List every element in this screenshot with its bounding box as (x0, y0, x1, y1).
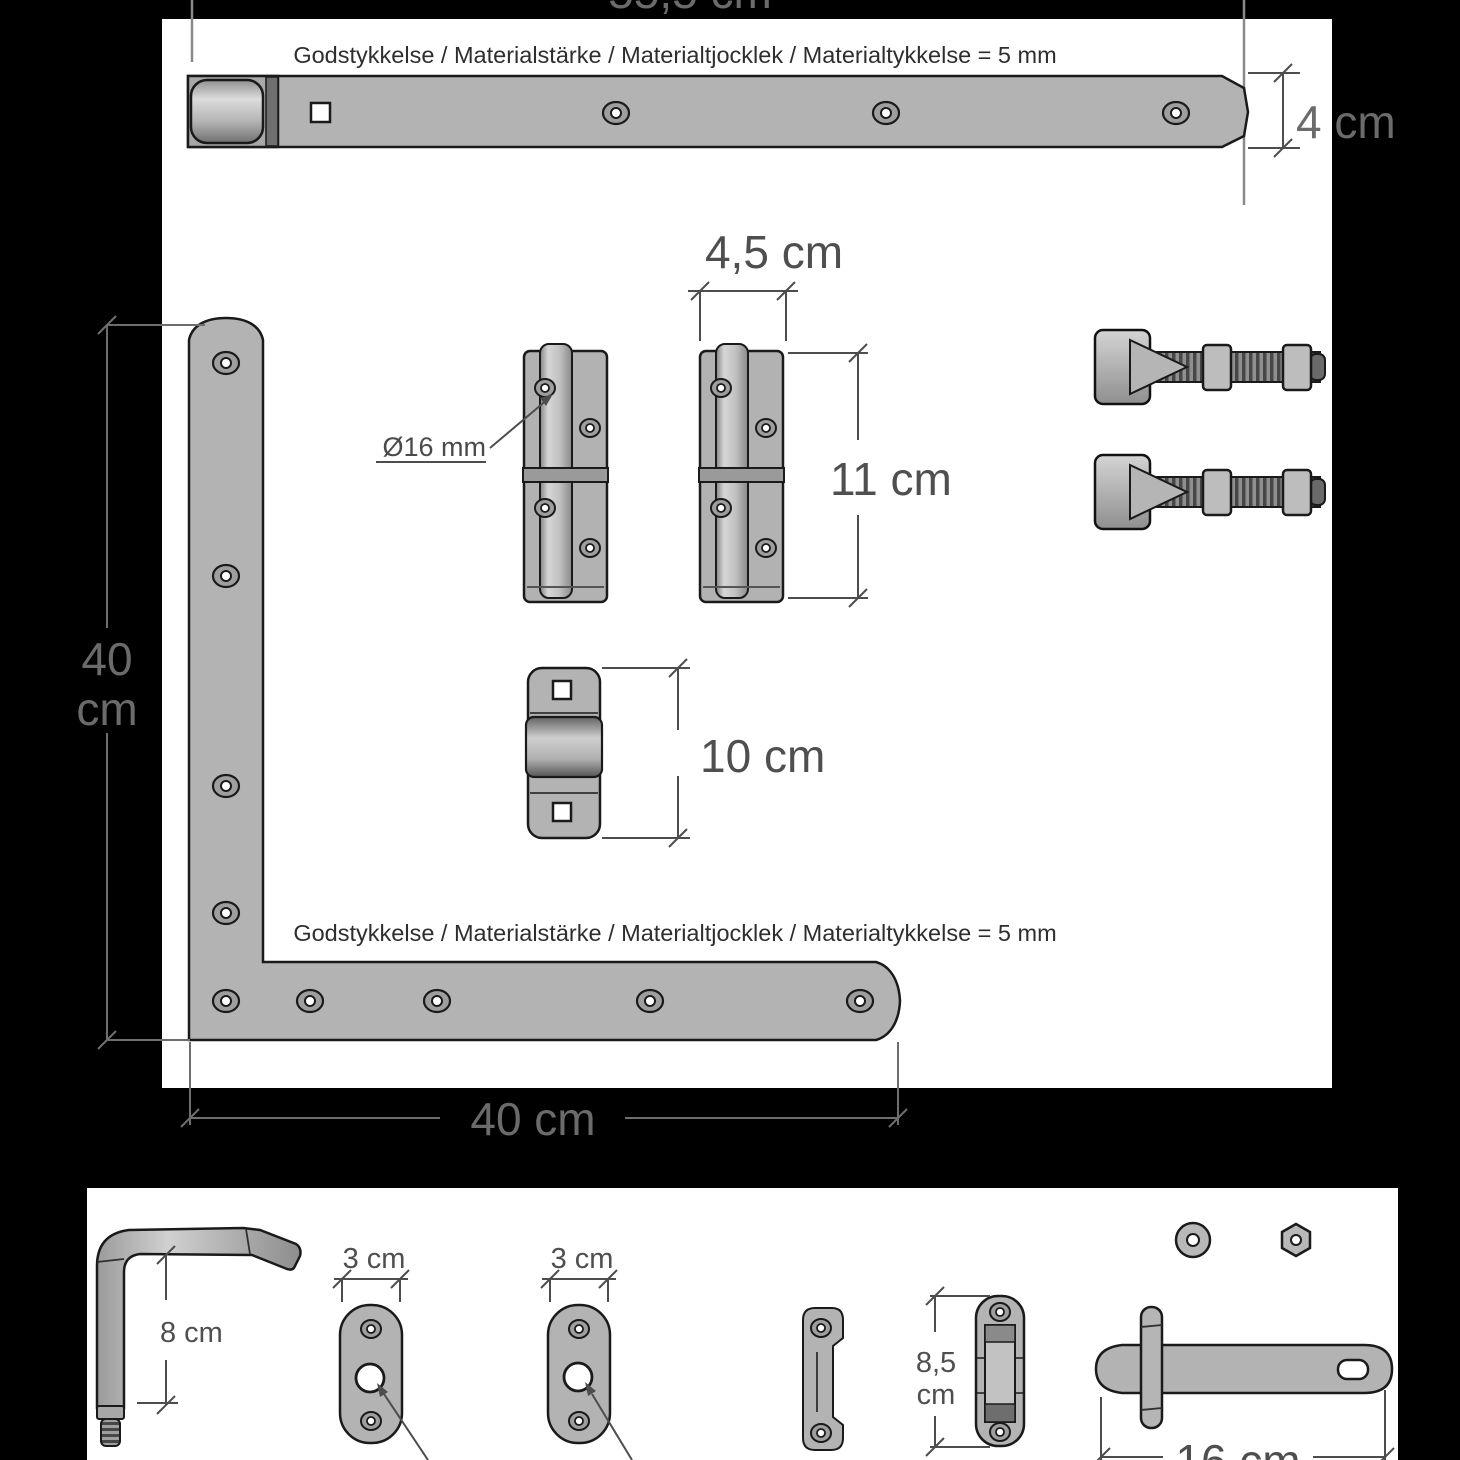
washer (1176, 1223, 1210, 1257)
dim-hinge-plate-width-label: 4,5 cm (705, 226, 843, 278)
screw-hole (603, 102, 629, 124)
thickness-note-bottom: Godstykkelse / Materialstärke / Material… (293, 920, 1056, 946)
screw-hole (213, 352, 239, 374)
hinge-knuckle-band (266, 77, 278, 146)
hinge-knuckle-barrel (191, 80, 263, 143)
screw-hole (424, 990, 450, 1012)
screw-hole (213, 775, 239, 797)
screw-hole (990, 1303, 1010, 1321)
hardware-dimension-diagram: 55,5 cm Godstykkelse / Materialstärke / … (0, 0, 1460, 1460)
slide-bolt (976, 1296, 1024, 1446)
strap-hinge (188, 76, 1248, 147)
dim-strap-width-label: 4 cm (1296, 96, 1396, 148)
latch-keeper-plate (526, 668, 602, 838)
pin-collar (97, 1406, 124, 1419)
dim-hinge-plate-height-label: 11 cm (830, 453, 952, 505)
dim-keeper-height-label: 10 cm (700, 730, 825, 782)
dim-slide-height-line1: 8,5 (916, 1347, 956, 1379)
screw-hole (847, 990, 873, 1012)
diagram-canvas: 55,5 cm Godstykkelse / Materialstärke / … (0, 0, 1460, 1460)
dim-corner-horizontal-label: 40 cm (470, 1093, 595, 1145)
screw-hole (637, 990, 663, 1012)
screw-hole (569, 1320, 589, 1338)
dim-latch-length-label: 16 cm (1175, 1435, 1300, 1460)
mounting-plate-1 (340, 1305, 402, 1443)
keeper-loop (526, 717, 602, 777)
screw-hole (213, 565, 239, 587)
pin-thread (101, 1419, 120, 1446)
screw-hole (569, 1412, 589, 1430)
dim-slide-height-line2: cm (917, 1379, 956, 1411)
square-hole (311, 103, 330, 122)
hinge-plate-2 (699, 344, 784, 602)
screw-hole (213, 902, 239, 924)
hex-nut (1282, 1224, 1310, 1256)
screw-hole (990, 1423, 1010, 1441)
hinge-plate-1 (523, 344, 608, 602)
screw-hole (361, 1412, 381, 1430)
dim-pin-diameter-label: Ø16 mm (382, 432, 486, 462)
square-hole (553, 681, 571, 699)
dim-corner-vertical-line2: cm (76, 683, 137, 735)
dim-pin-length-label: 8 cm (160, 1317, 223, 1349)
screw-hole (361, 1320, 381, 1338)
square-hole (553, 803, 571, 821)
latch-slot (1338, 1360, 1368, 1379)
dim-corner-vertical-line1: 40 (81, 633, 132, 685)
screw-hole (811, 1319, 831, 1337)
dim-plate-width-1-label: 3 cm (343, 1243, 406, 1275)
screw-hole (811, 1424, 831, 1442)
screw-hole (1163, 102, 1189, 124)
screw-hole (297, 990, 323, 1012)
screw-hole (213, 990, 239, 1012)
mounting-plate-2 (548, 1305, 610, 1443)
thickness-note-top: Godstykkelse / Materialstärke / Material… (293, 42, 1056, 68)
screw-hole (873, 102, 899, 124)
dim-strap-length-label: 55,5 cm (608, 0, 772, 18)
dim-plate-width-2-label: 3 cm (551, 1243, 614, 1275)
